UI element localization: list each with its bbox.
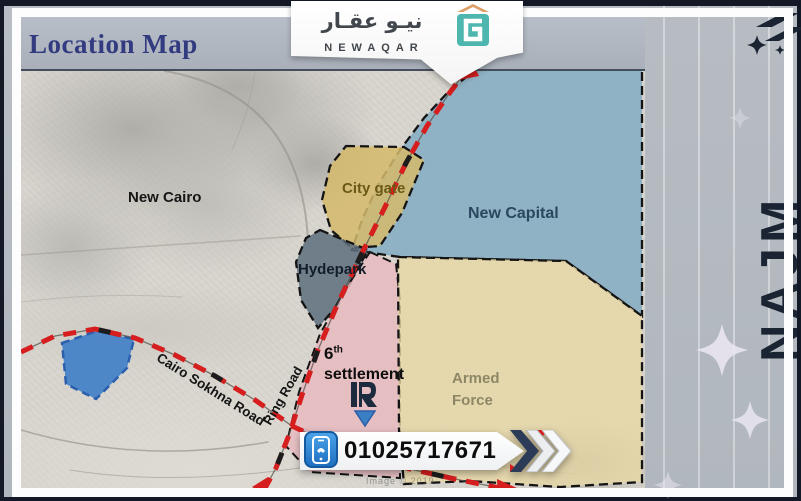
location-pin-triangle [355,411,375,426]
pinstripe-line [663,6,665,497]
frame-border-left [12,8,21,497]
pinstripe-line [698,6,700,497]
najm-vertical-wordmark: NAJM [750,195,801,362]
page-title: Location Map [29,29,198,60]
project-marker-logo [351,382,377,407]
zone-lake [62,331,134,399]
project-marker [349,382,379,428]
frame-border-right [784,8,793,497]
newaqar-arabic-wordmark: نيـو عقـار [297,9,447,33]
map-overlay [21,71,645,488]
phone-number: 01025717671 [344,437,496,465]
newaqar-logo-ribbon: نيـو عقـار NEWAQAR [291,1,523,87]
newaqar-logo-icon [453,3,493,53]
phone-banner[interactable]: 01025717671 [300,430,576,472]
frame-border-bottom [12,488,793,497]
location-map-flyer: NAJM Location Map [0,0,801,501]
pinstripe-line [733,6,735,497]
newaqar-latin-wordmark: NEWAQAR [301,42,447,54]
roof-icon [457,4,489,12]
phone-icon [304,431,338,468]
